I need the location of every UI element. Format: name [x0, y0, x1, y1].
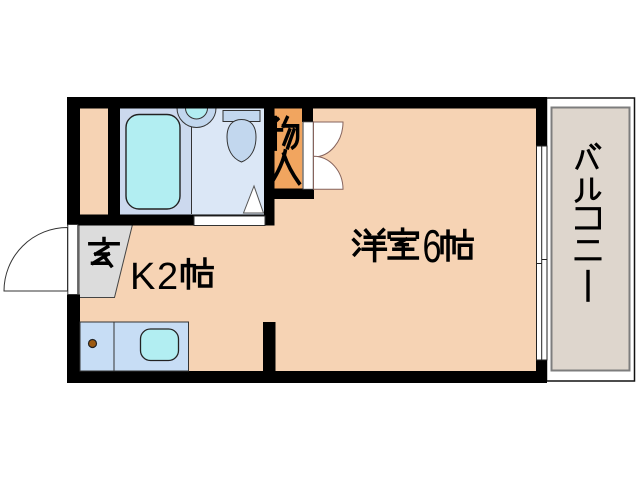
svg-text:2: 2	[157, 256, 178, 298]
svg-text:6: 6	[423, 220, 442, 272]
svg-text:K: K	[130, 256, 155, 298]
